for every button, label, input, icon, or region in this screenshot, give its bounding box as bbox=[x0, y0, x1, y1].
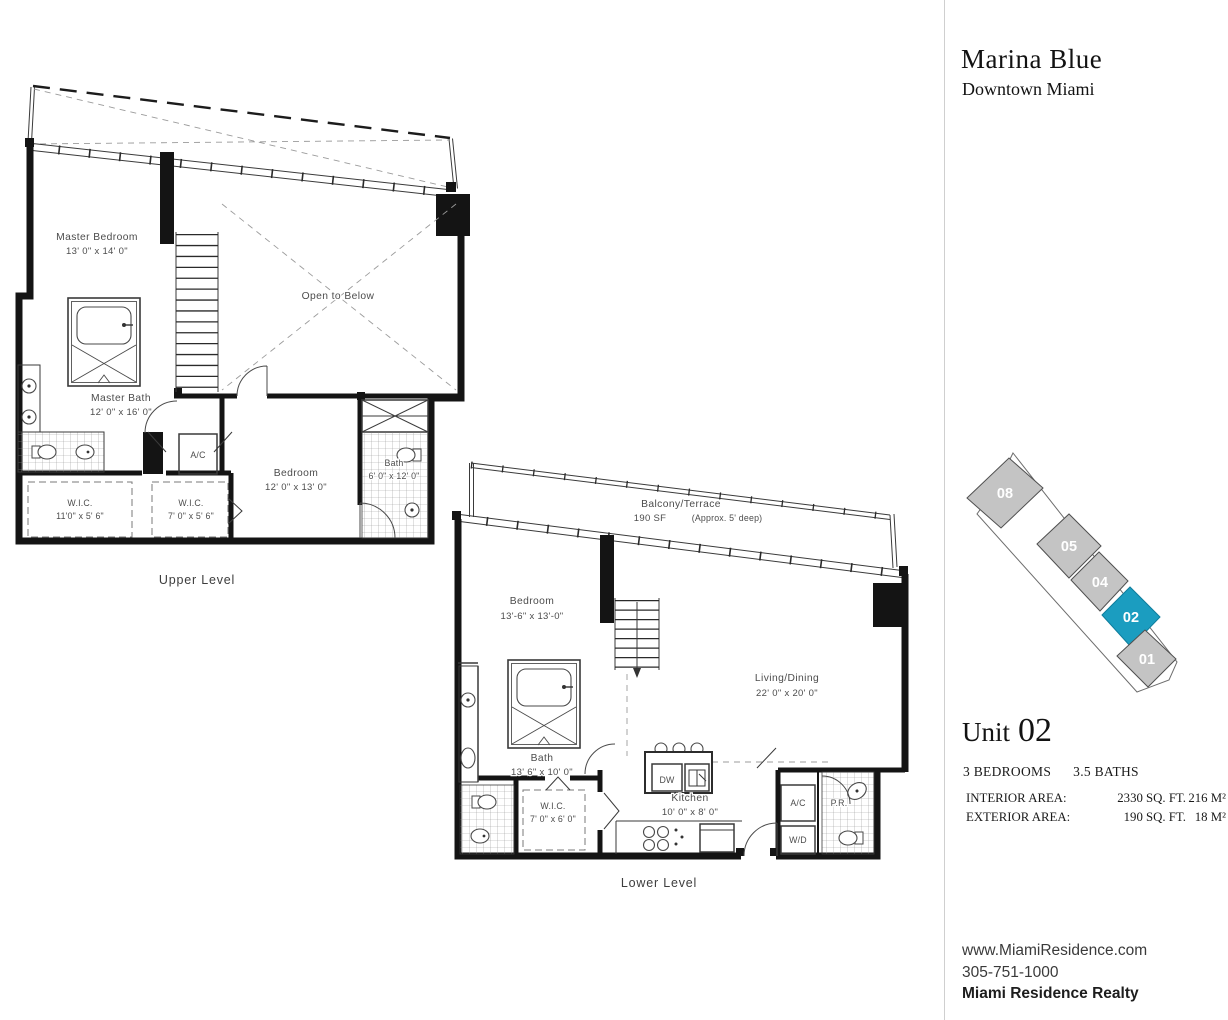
master-tub-shower-icon bbox=[68, 298, 140, 386]
brand-title: Marina Blue bbox=[961, 44, 1102, 75]
exterior-area-metric: 18 M² bbox=[1195, 810, 1226, 825]
room-label-living-dining: Living/Dining bbox=[755, 673, 819, 684]
lower-ac-closet bbox=[757, 748, 815, 821]
keyplan-label-08: 08 bbox=[997, 486, 1013, 502]
room-dims-upper-bedroom: 12' 0" x 13' 0" bbox=[265, 482, 327, 493]
interior-area-imperial: 2330 SQ. FT. bbox=[1117, 791, 1186, 806]
kitchen-counter bbox=[616, 821, 742, 854]
upper-floorplan: Master Bedroom 13' 0" x 14' 0" Open to B… bbox=[18, 86, 470, 587]
lower-toilet-room bbox=[460, 785, 514, 854]
label-upper-ac: A/C bbox=[190, 450, 206, 460]
footer: www.MiamiResidence.com 305-751-1000 Miam… bbox=[962, 940, 1147, 1005]
room-label-upper-bedroom: Bedroom bbox=[274, 468, 319, 479]
bedrooms-text: 3 BEDROOMS bbox=[963, 764, 1051, 779]
room-label-lower-bedroom: Bedroom bbox=[510, 596, 555, 607]
keyplan-label-04: 04 bbox=[1092, 575, 1108, 591]
exterior-area-label: EXTERIOR AREA: bbox=[966, 810, 1070, 824]
room-dims-wic2: 7' 0" x 5' 6" bbox=[168, 511, 214, 521]
interior-area-row: INTERIOR AREA: 2330 SQ. FT. 216 M² bbox=[966, 791, 1226, 808]
room-label-wic1: W.I.C. bbox=[67, 498, 92, 508]
upper-level-caption: Upper Level bbox=[159, 573, 235, 587]
upper-corner-block bbox=[436, 194, 470, 236]
lower-sink-strip bbox=[459, 666, 478, 782]
room-label-open-to-below: Open to Below bbox=[302, 291, 375, 302]
lower-floorplan: Balcony/Terrace 190 SF (Approx. 5' deep)… bbox=[452, 463, 908, 890]
interior-area-label: INTERIOR AREA: bbox=[966, 791, 1067, 805]
unit-number: 02 bbox=[1018, 712, 1052, 749]
label-wd: W/D bbox=[789, 835, 807, 845]
exterior-area-row: EXTERIOR AREA: 190 SQ. FT. 18 M² bbox=[966, 810, 1226, 827]
room-label-kitchen: Kitchen bbox=[671, 793, 708, 804]
footer-website: www.MiamiResidence.com bbox=[962, 940, 1147, 962]
flyer-page: Master Bedroom 13' 0" x 14' 0" Open to B… bbox=[0, 0, 1228, 1020]
room-dims-wic1: 11'0" x 5' 6" bbox=[56, 511, 104, 521]
room-label-balcony: Balcony/Terrace bbox=[641, 499, 721, 510]
lower-level-caption: Lower Level bbox=[621, 876, 697, 890]
label-pr: P.R. bbox=[831, 798, 848, 808]
wic1-outline bbox=[28, 482, 132, 537]
label-lower-ac: A/C bbox=[790, 798, 806, 808]
lower-tub-shower-icon bbox=[508, 660, 580, 748]
baths-text: 3.5 BATHS bbox=[1073, 764, 1139, 779]
floorplans-canvas: Master Bedroom 13' 0" x 14' 0" Open to B… bbox=[0, 0, 944, 1020]
label-dw: DW bbox=[659, 775, 675, 785]
room-area-balcony: 190 SF bbox=[634, 513, 666, 524]
room-label-upper-bath: Bath bbox=[385, 458, 404, 468]
kitchen-island bbox=[645, 743, 712, 793]
room-label-lower-wic: W.I.C. bbox=[540, 801, 565, 811]
column-divider bbox=[944, 0, 945, 1020]
lower-corner-block bbox=[873, 583, 905, 627]
keyplan: 08 05 04 02 01 bbox=[953, 450, 1179, 705]
upper-toilet-room bbox=[18, 432, 104, 472]
bed-bath-line: 3 BEDROOMS3.5 BATHS bbox=[963, 764, 1139, 780]
exterior-area-imperial: 190 SQ. FT. bbox=[1124, 810, 1186, 825]
room-dims-lower-bath: 13' 6" x 10' 0" bbox=[511, 767, 573, 778]
room-dims-lower-wic: 7' 0" x 6' 0" bbox=[530, 814, 576, 824]
room-dims-upper-bath: 6' 0" x 12' 0" bbox=[368, 471, 419, 481]
lower-stairs bbox=[615, 598, 659, 678]
powder-room bbox=[822, 772, 874, 854]
room-label-wic2: W.I.C. bbox=[178, 498, 203, 508]
wic2-outline bbox=[152, 482, 228, 537]
room-dims-lower-bedroom: 13'-6" x 13'-0" bbox=[501, 611, 564, 622]
room-dims-kitchen: 10' 0" x 8' 0" bbox=[662, 807, 718, 818]
brand-subtitle: Downtown Miami bbox=[962, 79, 1095, 100]
keyplan-label-02: 02 bbox=[1123, 610, 1139, 626]
room-label-master-bath: Master Bath bbox=[91, 393, 151, 404]
interior-area-metric: 216 M² bbox=[1188, 791, 1226, 806]
footer-company: Miami Residence Realty bbox=[962, 983, 1147, 1005]
upper-window-wall bbox=[25, 138, 456, 197]
room-dims-living-dining: 22' 0" x 20' 0" bbox=[756, 688, 818, 699]
upper-stairs bbox=[176, 232, 218, 392]
keyplan-label-05: 05 bbox=[1061, 539, 1077, 555]
room-dims-master-bedroom: 13' 0" x 14' 0" bbox=[66, 246, 128, 257]
unit-title-prefix: Unit bbox=[962, 717, 1010, 747]
room-note-balcony: (Approx. 5' deep) bbox=[692, 513, 763, 523]
unit-title: Unit02 bbox=[962, 712, 1052, 750]
keyplan-label-01: 01 bbox=[1139, 652, 1155, 668]
balcony-railing bbox=[470, 463, 898, 568]
room-label-lower-bath: Bath bbox=[531, 753, 554, 764]
upper-bath-room bbox=[362, 400, 428, 538]
lower-window-wall bbox=[452, 511, 908, 578]
room-dims-master-bath: 12' 0" x 16' 0" bbox=[90, 407, 152, 418]
room-label-master-bedroom: Master Bedroom bbox=[56, 232, 138, 243]
footer-phone: 305-751-1000 bbox=[962, 962, 1147, 984]
